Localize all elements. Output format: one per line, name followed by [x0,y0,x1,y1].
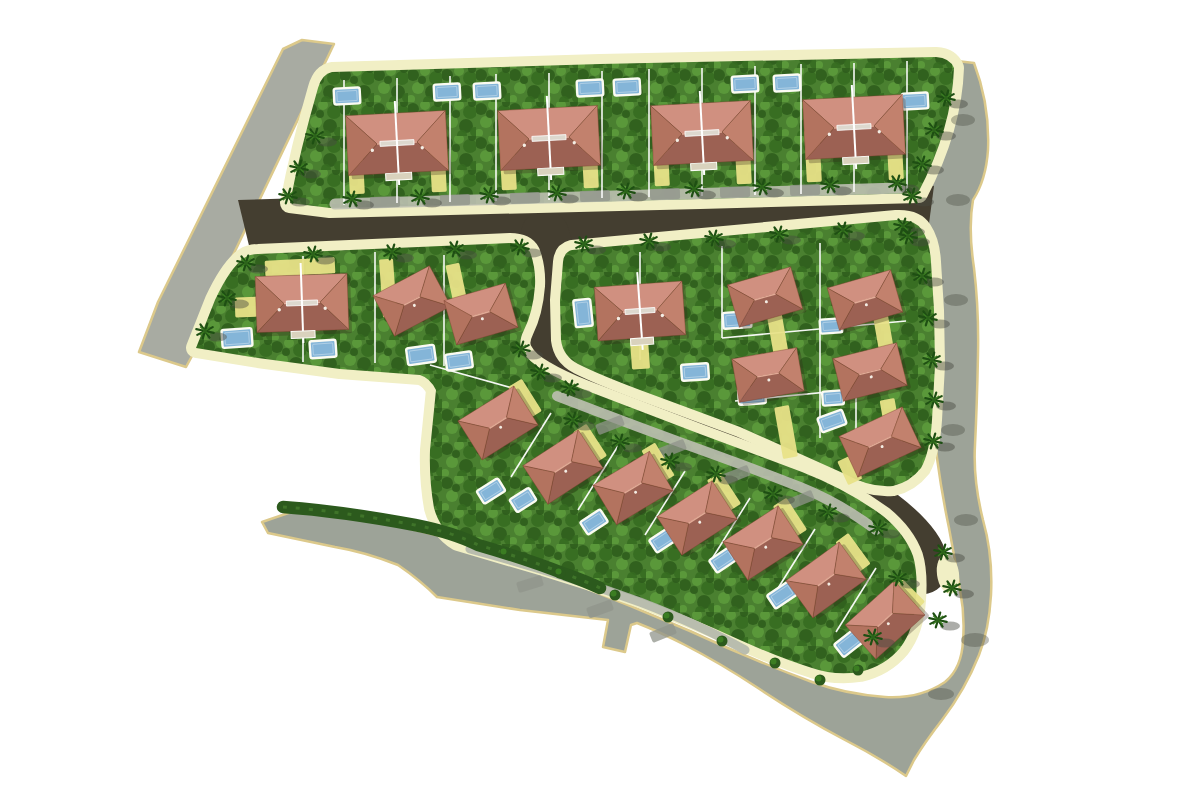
swimming-pool [334,87,361,104]
swimming-pool [577,79,604,96]
parked-car-shadow [580,190,610,202]
shrub [717,636,728,647]
shrub [610,590,621,601]
shrub [853,665,864,676]
shrub [500,548,511,559]
tree-shadow [954,514,978,526]
parked-car-shadow [440,194,470,206]
swimming-pool [573,299,593,328]
tree-shadow [951,114,975,126]
shrub [770,658,781,669]
tree-shadow [961,633,989,647]
shrub [663,612,674,623]
parked-car-shadow [650,188,680,200]
shrub [555,568,566,579]
swimming-pool [474,82,501,99]
swimming-pool [445,351,473,370]
swimming-pool [681,363,709,381]
swimming-pool [614,78,641,95]
parked-car-shadow [370,196,400,208]
tree-shadow [928,688,954,700]
swimming-pool [406,345,436,366]
swimming-pool [434,83,461,100]
parked-car-shadow [720,186,750,198]
parked-car-shadow [790,184,820,196]
tree-shadow [944,294,968,306]
shrub [815,675,826,686]
site-plan-drawing [0,0,1200,800]
swimming-pool [774,74,801,91]
tree-shadow [946,194,970,206]
tree-shadow [941,424,965,436]
swimming-pool [309,340,336,359]
parked-car-shadow [510,192,540,204]
swimming-pool [822,390,844,405]
site-plan-canvas [0,0,1200,800]
swimming-pool [732,75,759,92]
